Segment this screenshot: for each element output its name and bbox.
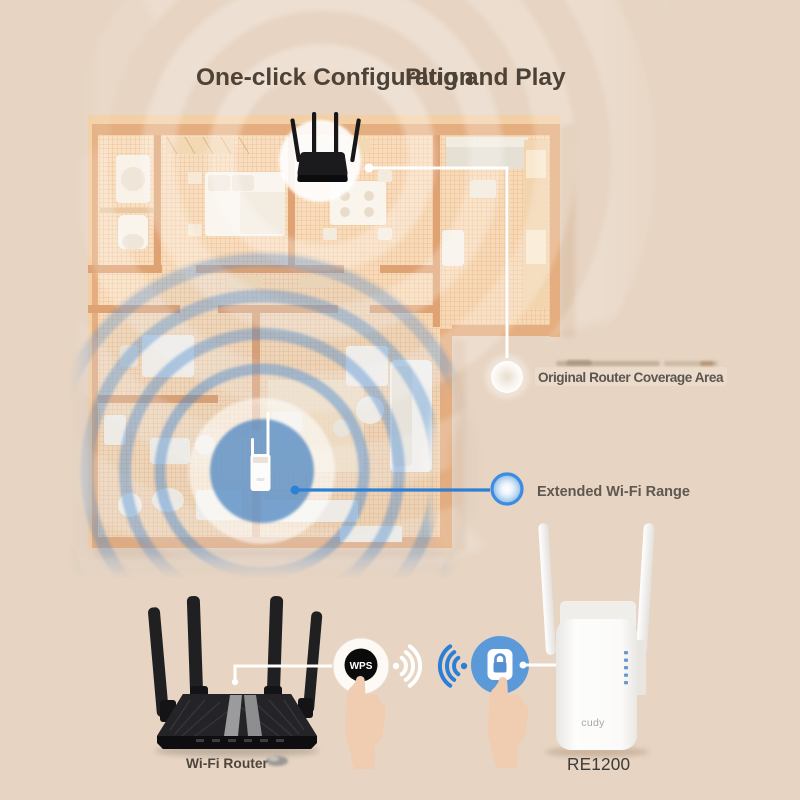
svg-text:WPS: WPS [350,661,373,672]
svg-text:Extended Wi-Fi Range: Extended Wi-Fi Range [537,484,690,500]
svg-text:Plug and Play: Plug and Play [405,64,566,91]
svg-text:RE1200: RE1200 [567,754,630,774]
svg-text:Original Router Coverage Area: Original Router Coverage Area [538,370,724,385]
svg-text:Wi-Fi Router: Wi-Fi Router [186,756,269,771]
svg-text:cudy: cudy [581,717,605,729]
